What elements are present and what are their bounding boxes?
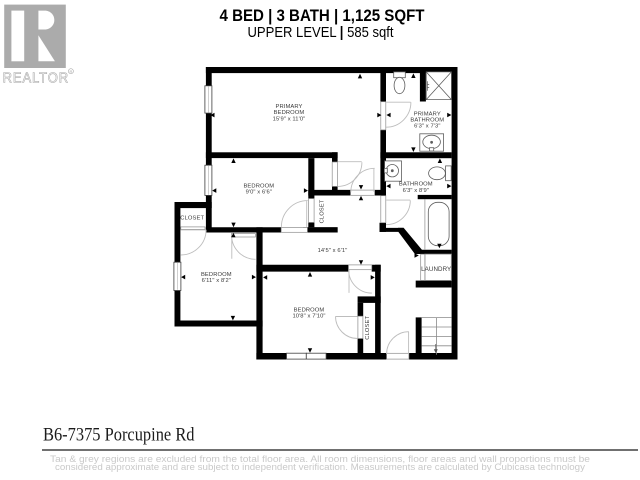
svg-text:LAUNDRY: LAUNDRY — [421, 266, 451, 273]
svg-text:R: R — [69, 69, 72, 74]
svg-text:6'3" x 8'9": 6'3" x 8'9" — [403, 188, 429, 194]
svg-text:BEDROOM: BEDROOM — [201, 272, 232, 278]
svg-text:PRIMARY: PRIMARY — [275, 104, 302, 110]
svg-text:BATHROOM: BATHROOM — [399, 182, 433, 188]
svg-text:CLOSET: CLOSET — [320, 199, 326, 223]
svg-text:6'3" x 7'3": 6'3" x 7'3" — [414, 123, 440, 129]
svg-text:4 BED | 3 BATH | 1,125 SQFT: 4 BED | 3 BATH | 1,125 SQFT — [220, 6, 426, 25]
svg-text:CLOSET: CLOSET — [365, 316, 371, 340]
svg-text:REALTOR: REALTOR — [3, 70, 70, 86]
svg-text:BEDROOM: BEDROOM — [243, 183, 274, 189]
svg-text:6'11" x 8'2": 6'11" x 8'2" — [202, 278, 231, 284]
svg-text:CLOSET: CLOSET — [180, 215, 204, 221]
svg-text:BEDROOM: BEDROOM — [294, 307, 325, 313]
svg-text:B6-7375 Porcupine Rd: B6-7375 Porcupine Rd — [43, 426, 195, 446]
svg-text:10'8" x 7'10": 10'8" x 7'10" — [292, 314, 325, 320]
svg-text:15'9" x 11'0": 15'9" x 11'0" — [273, 116, 306, 122]
svg-text:14'5" x 6'1": 14'5" x 6'1" — [318, 248, 348, 254]
svg-text:considered approximate and are: considered approximate and are subject t… — [55, 462, 586, 472]
svg-text:9'0" x 6'6": 9'0" x 6'6" — [246, 190, 272, 196]
svg-text:BEDROOM: BEDROOM — [274, 110, 305, 116]
svg-text:UPPER LEVEL | 585 sqft: UPPER LEVEL | 585 sqft — [248, 25, 394, 41]
